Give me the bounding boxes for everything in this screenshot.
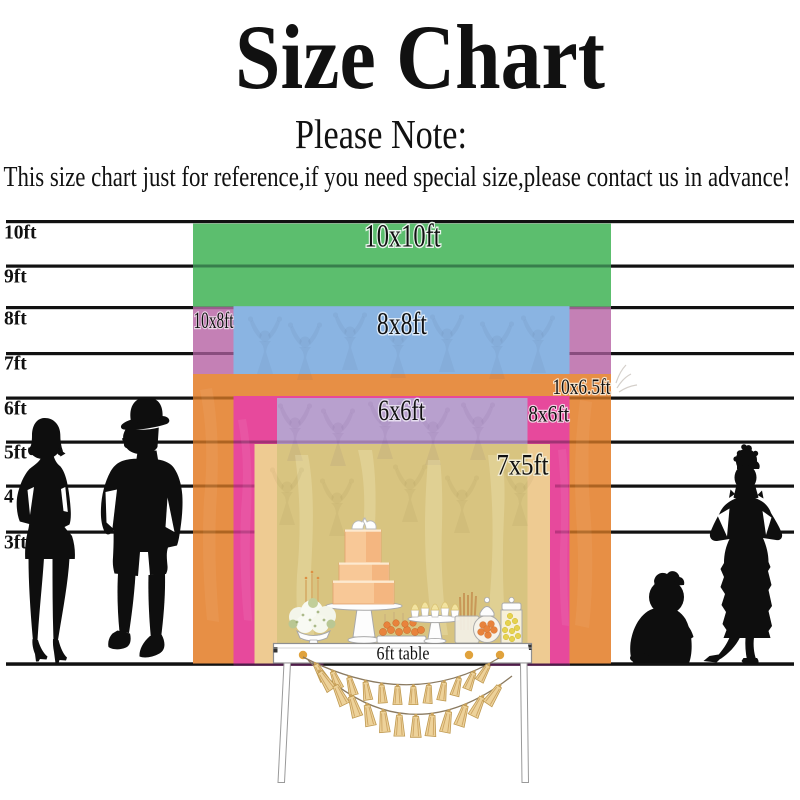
svg-text:6x6ft: 6x6ft bbox=[378, 394, 425, 427]
svg-text:10ft: 10ft bbox=[4, 223, 37, 244]
svg-text:8x8ft: 8x8ft bbox=[377, 305, 427, 341]
svg-text:10x10ft: 10x10ft bbox=[365, 219, 441, 255]
svg-text:4: 4 bbox=[4, 487, 14, 508]
svg-text:5ft: 5ft bbox=[4, 443, 27, 464]
svg-text:This size chart just for refer: This size chart just for reference,if yo… bbox=[4, 162, 791, 193]
svg-text:6ft: 6ft bbox=[4, 399, 27, 420]
svg-text:Please Note:: Please Note: bbox=[295, 111, 467, 157]
svg-text:7ft: 7ft bbox=[4, 354, 27, 375]
svg-text:8ft: 8ft bbox=[4, 309, 27, 330]
svg-text:6ft table: 6ft table bbox=[377, 644, 430, 665]
svg-text:9ft: 9ft bbox=[4, 267, 27, 288]
svg-text:10x6.5ft: 10x6.5ft bbox=[553, 374, 611, 399]
svg-text:10x8ft: 10x8ft bbox=[194, 308, 234, 334]
svg-text:Size Chart: Size Chart bbox=[235, 6, 605, 108]
svg-text:8x6ft: 8x6ft bbox=[528, 401, 570, 426]
svg-text:3ft: 3ft bbox=[4, 533, 27, 554]
svg-text:7x5ft: 7x5ft bbox=[497, 449, 550, 482]
